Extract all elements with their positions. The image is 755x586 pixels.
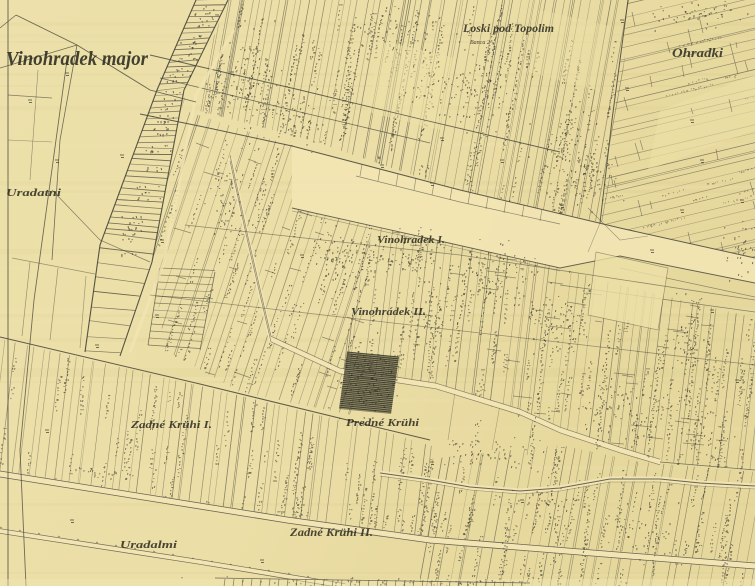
svg-text:Vinohrádek II.: Vinohrádek II. <box>351 306 426 318</box>
svg-text:Loski pod Topolim: Loski pod Topolim <box>462 23 554 35</box>
svg-text:Ohradki: Ohradki <box>672 45 723 60</box>
svg-text:Vinohradek I.: Vinohradek I. <box>377 235 445 246</box>
svg-text:Zadné Krühi II.: Zadné Krühi II. <box>289 527 373 539</box>
svg-text:Uradatni: Uradatni <box>6 188 61 199</box>
svg-text:Vinohradek major: Vinohradek major <box>6 48 148 70</box>
svg-text:Zadné Krühi I.: Zadné Krühi I. <box>130 419 212 431</box>
svg-text:Uradalmi: Uradalmi <box>120 540 177 551</box>
svg-text:Banca 2: Banca 2 <box>470 40 490 46</box>
svg-text:Predné Krühi: Predné Krühi <box>346 417 420 429</box>
